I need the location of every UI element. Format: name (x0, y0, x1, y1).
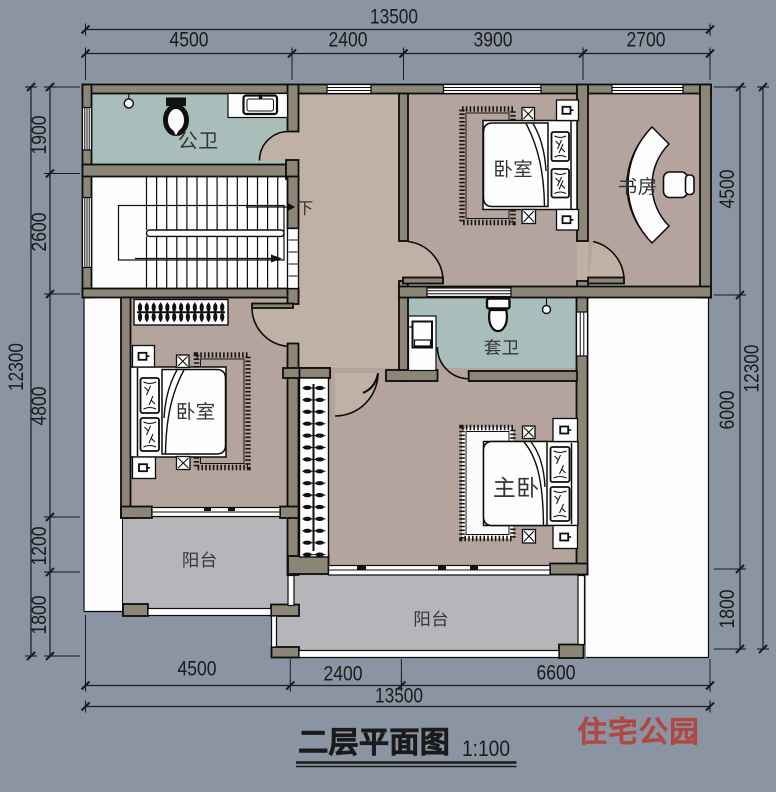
svg-text:4500: 4500 (170, 29, 209, 52)
svg-text:13500: 13500 (375, 685, 423, 708)
svg-text:2400: 2400 (329, 29, 368, 52)
svg-text:1800: 1800 (716, 590, 739, 629)
svg-text:4500: 4500 (716, 170, 739, 209)
svg-text:3900: 3900 (474, 29, 513, 52)
svg-text:13500: 13500 (370, 6, 418, 29)
svg-text:2400: 2400 (324, 663, 363, 686)
svg-text:6000: 6000 (716, 391, 739, 430)
svg-text:12300: 12300 (5, 343, 28, 391)
svg-text:4500: 4500 (178, 658, 217, 681)
svg-text:1:100: 1:100 (462, 736, 510, 761)
svg-text:6600: 6600 (537, 662, 576, 685)
svg-text:2700: 2700 (627, 29, 666, 52)
svg-text:12300: 12300 (741, 345, 764, 393)
